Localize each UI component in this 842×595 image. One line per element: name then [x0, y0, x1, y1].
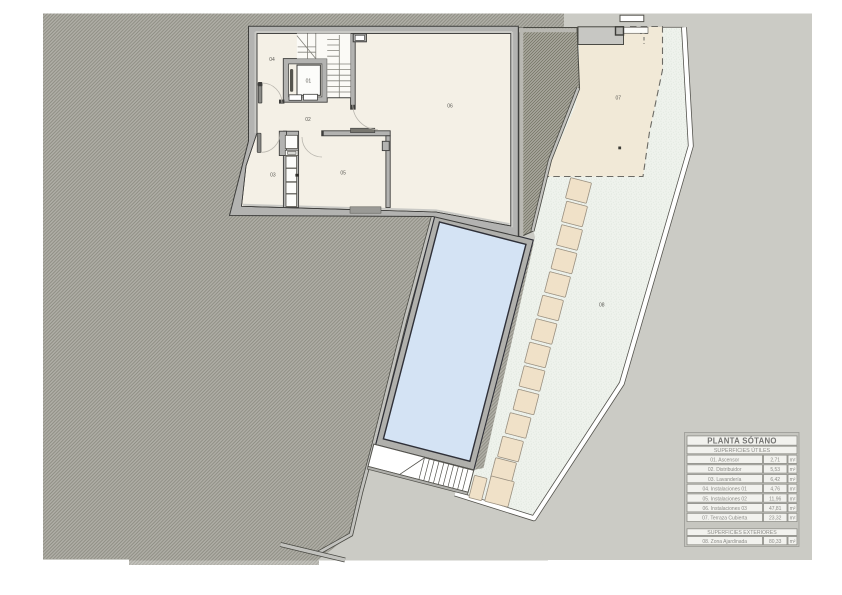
svg-text:PLANTA SÓTANO: PLANTA SÓTANO [707, 437, 777, 446]
svg-text:m²: m² [790, 477, 796, 483]
svg-text:m²: m² [790, 487, 796, 493]
svg-text:07. Terraza Cubierta: 07. Terraza Cubierta [702, 516, 747, 522]
svg-text:5,53: 5,53 [770, 467, 780, 473]
svg-text:01. Ascensor: 01. Ascensor [710, 458, 739, 464]
svg-text:6,42: 6,42 [770, 477, 780, 483]
svg-text:02. Distribuidor: 02. Distribuidor [708, 467, 742, 473]
svg-text:80,33: 80,33 [769, 539, 782, 545]
svg-text:m²: m² [790, 539, 796, 545]
svg-text:SUPERFICIES EXTERIORES: SUPERFICIES EXTERIORES [707, 530, 777, 536]
svg-text:01: 01 [306, 78, 312, 84]
svg-text:23,32: 23,32 [769, 516, 782, 522]
svg-text:11,96: 11,96 [769, 496, 781, 502]
svg-text:03. Lavandería: 03. Lavandería [708, 477, 742, 483]
svg-text:05. Instalaciones 02: 05. Instalaciones 02 [702, 496, 747, 502]
svg-text:08. Zona Ajardinada: 08. Zona Ajardinada [702, 539, 747, 545]
svg-text:02: 02 [305, 117, 311, 123]
svg-text:04. Instalaciones 01: 04. Instalaciones 01 [702, 487, 747, 493]
svg-text:m²: m² [790, 467, 796, 473]
svg-text:06: 06 [447, 104, 453, 110]
svg-text:4,76: 4,76 [770, 487, 780, 493]
svg-text:m²: m² [790, 496, 796, 502]
svg-text:2,71: 2,71 [770, 458, 780, 464]
svg-text:08: 08 [599, 303, 605, 309]
svg-text:m²: m² [790, 516, 796, 522]
svg-text:05: 05 [340, 170, 346, 176]
svg-text:03: 03 [270, 173, 276, 179]
svg-text:06. Instalaciones 03: 06. Instalaciones 03 [702, 506, 747, 512]
svg-text:m²: m² [790, 458, 796, 464]
svg-text:07: 07 [616, 96, 622, 102]
svg-text:SUPERFICIES ÚTILES: SUPERFICIES ÚTILES [714, 447, 771, 454]
svg-text:47,81: 47,81 [769, 506, 782, 512]
svg-text:m²: m² [790, 506, 796, 512]
svg-text:04: 04 [269, 57, 275, 63]
